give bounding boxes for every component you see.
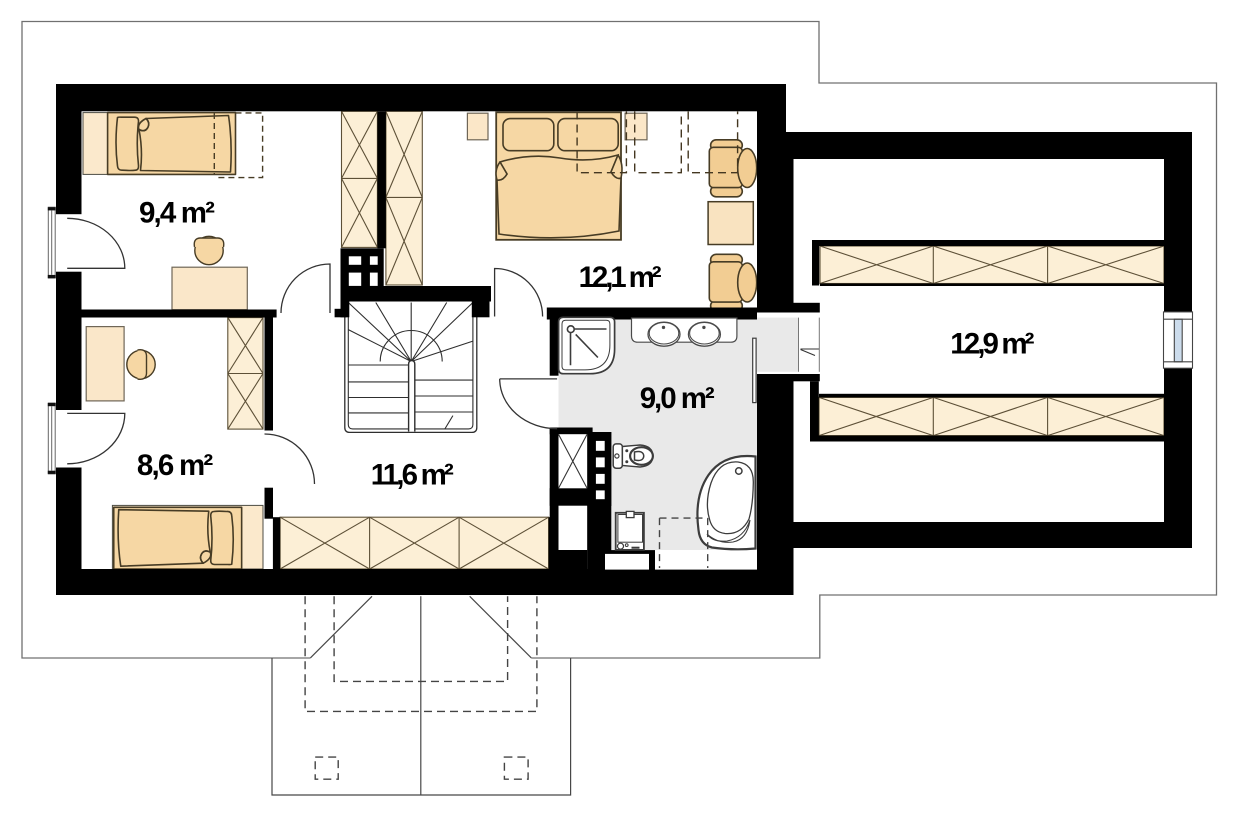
svg-text:9,4 m²: 9,4 m² [139, 197, 215, 230]
svg-text:12,1 m²: 12,1 m² [579, 261, 662, 294]
svg-text:11,6 m²: 11,6 m² [371, 459, 454, 492]
svg-text:9,0 m²: 9,0 m² [640, 382, 715, 415]
svg-text:12,9 m²: 12,9 m² [950, 327, 1034, 360]
svg-text:8,6 m²: 8,6 m² [137, 449, 213, 482]
